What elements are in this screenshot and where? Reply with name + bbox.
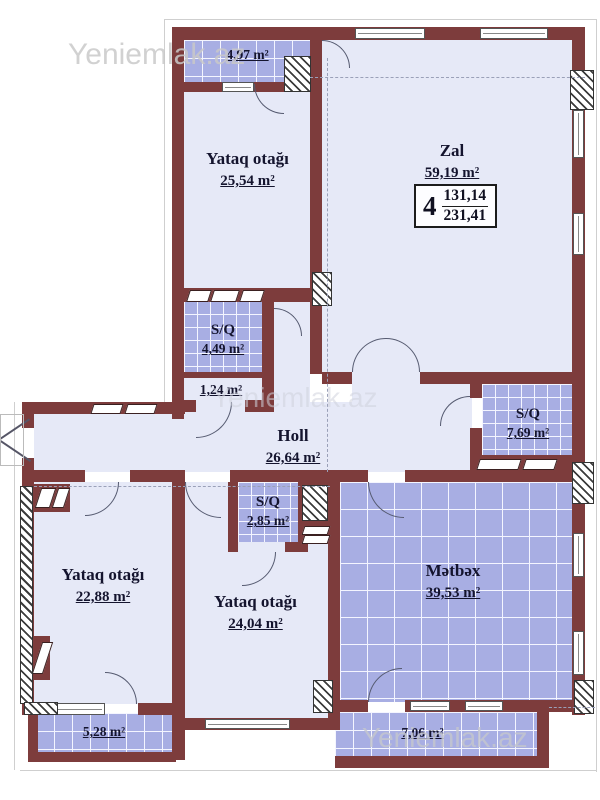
room-name: Yataq otağı xyxy=(33,564,173,587)
room-area: 25,54 m² xyxy=(185,171,310,191)
closet-slot xyxy=(210,290,240,302)
room-area: 39,53 m² xyxy=(388,583,518,603)
outline-bottom xyxy=(20,770,596,771)
room-label-holl: Holl 26,64 m² xyxy=(238,425,348,468)
outline-right xyxy=(596,19,597,772)
window xyxy=(410,701,450,711)
wall xyxy=(572,473,585,715)
wall xyxy=(138,703,172,715)
wall xyxy=(470,384,482,398)
room-name: Mətbəx xyxy=(388,560,518,583)
room-label-balcony-left: 5,28 m² xyxy=(45,723,163,741)
window xyxy=(573,213,584,255)
window xyxy=(55,703,105,715)
centerline xyxy=(549,707,595,708)
unit-room-count: 4 xyxy=(423,191,437,222)
window xyxy=(573,110,584,158)
watermark-middle: Yeniemlak.az xyxy=(212,382,378,414)
closet-slot xyxy=(239,290,265,302)
outline-left-upper xyxy=(164,19,165,402)
wall xyxy=(172,27,184,419)
entrance-porch xyxy=(0,414,24,466)
wall xyxy=(335,756,549,768)
closet-slot xyxy=(186,290,212,302)
room-label-kitchen: Mətbəx 39,53 m² xyxy=(388,560,518,603)
room-area: 4,49 m² xyxy=(186,340,260,358)
hatch-shaft xyxy=(313,680,333,713)
room-label-sq769: S/Q 7,69 m² xyxy=(488,404,568,442)
room-name: Yataq otağı xyxy=(183,591,328,614)
wall xyxy=(470,372,585,384)
room-label-bedroom-mid: Yataq otağı 24,04 m² xyxy=(183,591,328,634)
centerline xyxy=(310,77,585,78)
wall xyxy=(230,470,368,482)
room-area: 59,19 m² xyxy=(392,163,512,183)
wall xyxy=(537,712,549,760)
room-label-zal: Zal 59,19 m² xyxy=(392,140,512,183)
window xyxy=(573,533,584,577)
window xyxy=(205,719,290,729)
wall xyxy=(184,372,262,378)
room-name: S/Q xyxy=(488,404,568,424)
room-label-bedroom-top: Yataq otağı 25,54 m² xyxy=(185,148,310,191)
closet-slot xyxy=(302,535,331,544)
window xyxy=(465,701,503,711)
wall xyxy=(310,40,322,374)
centerline xyxy=(34,486,330,487)
window xyxy=(222,82,254,92)
room-area: 2,85 m² xyxy=(230,512,306,530)
room-name: Zal xyxy=(392,140,512,163)
room-label-sq285: S/Q 2,85 m² xyxy=(230,492,306,530)
room-area: 7,69 m² xyxy=(488,424,568,442)
watermark-bottom: Yeniemlak.az xyxy=(362,722,528,754)
wall xyxy=(228,542,238,552)
room-area: 26,64 m² xyxy=(238,448,348,468)
room-label-sq449: S/Q 4,49 m² xyxy=(186,320,260,358)
watermark-top: Yeniemlak.az xyxy=(68,38,245,72)
room-area: 5,28 m² xyxy=(45,723,163,741)
window xyxy=(480,28,548,39)
unit-living-area: 131,14 xyxy=(442,187,489,207)
wall xyxy=(28,752,176,762)
window xyxy=(355,28,425,39)
closet-slot xyxy=(476,459,522,470)
room-area: 24,04 m² xyxy=(183,614,328,634)
unit-area-fraction: 131,14 231,41 xyxy=(442,187,489,225)
room-name: Yataq otağı xyxy=(185,148,310,171)
floor-plan: 4,97 m² Yataq otağı 25,54 m² Zal 59,19 m… xyxy=(0,0,600,800)
wall xyxy=(328,700,368,712)
unit-total-area: 231,41 xyxy=(442,207,489,226)
hatch-shaft xyxy=(572,462,594,504)
hatch-shaft xyxy=(24,702,58,715)
closet-slot xyxy=(124,404,157,414)
wall xyxy=(405,470,470,482)
wall xyxy=(22,470,85,482)
outline-top xyxy=(165,19,597,20)
room-name: S/Q xyxy=(230,492,306,512)
hatch-shaft xyxy=(312,272,332,306)
wall xyxy=(420,372,470,384)
room-area: 22,88 m² xyxy=(33,587,173,607)
closet-slot xyxy=(522,459,558,470)
wall xyxy=(470,428,482,455)
unit-info-box: 4 131,14 231,41 xyxy=(414,184,497,228)
wall xyxy=(184,400,196,412)
hatch-shaft xyxy=(570,70,594,110)
room-label-bedroom-left: Yataq otağı 22,88 m² xyxy=(33,564,173,607)
room-name: S/Q xyxy=(186,320,260,340)
hatch-shaft xyxy=(574,680,594,714)
hatch-wall-strip xyxy=(20,486,33,704)
closet-slot xyxy=(90,404,123,414)
room-name: Holl xyxy=(238,425,348,448)
window xyxy=(573,631,584,675)
